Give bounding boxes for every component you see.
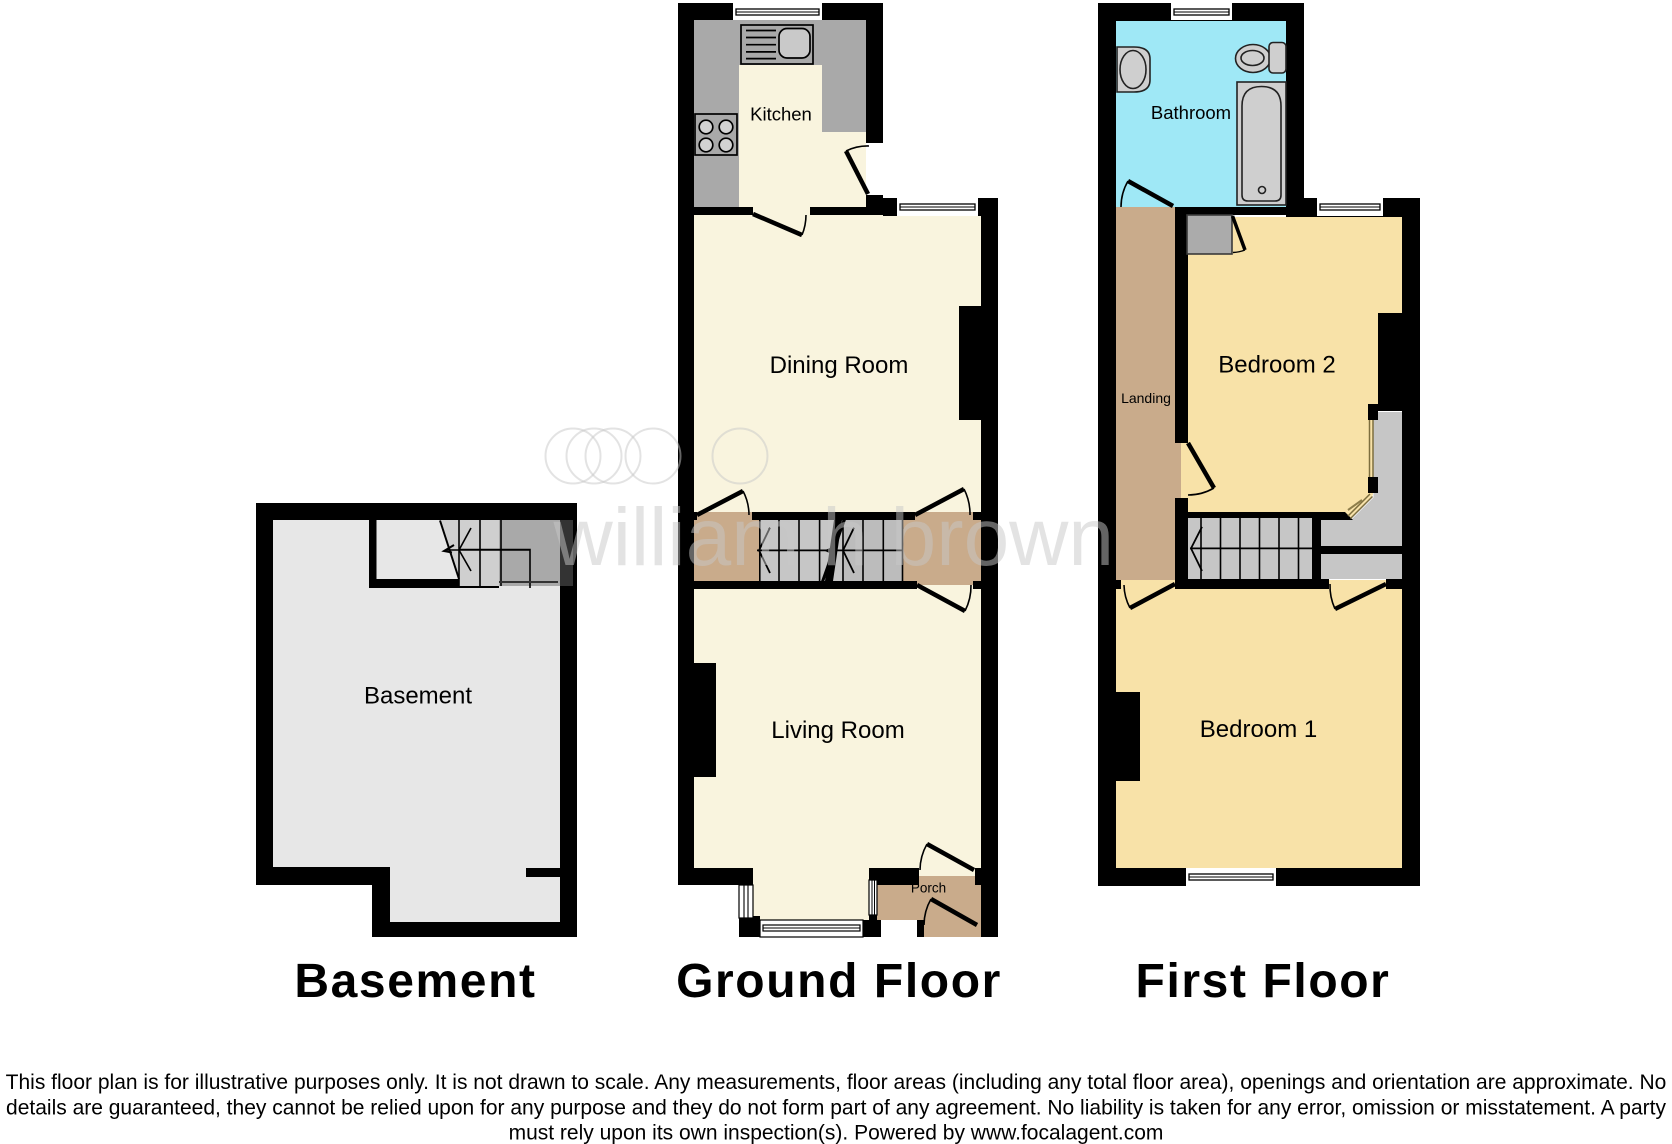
svg-text:william h brown: william h brown (553, 492, 1115, 583)
svg-text:Living Room: Living Room (771, 717, 904, 744)
svg-text:This floor plan is for illustr: This floor plan is for illustrative purp… (6, 1071, 1667, 1094)
svg-text:Bedroom 1: Bedroom 1 (1200, 716, 1317, 743)
svg-text:Kitchen: Kitchen (750, 104, 812, 125)
svg-text:Dining Room: Dining Room (770, 352, 909, 379)
svg-text:Bedroom 2: Bedroom 2 (1218, 352, 1335, 379)
svg-text:details are guaranteed, they c: details are guaranteed, they cannot be r… (6, 1097, 1666, 1120)
svg-text:Bathroom: Bathroom (1151, 102, 1231, 123)
svg-text:Landing: Landing (1121, 390, 1171, 406)
svg-text:Basement: Basement (364, 683, 472, 710)
svg-text:Porch: Porch (911, 881, 946, 896)
svg-text:must rely upon its own inspect: must rely upon its own inspection(s). Po… (509, 1122, 1164, 1144)
svg-text:Ground Floor: Ground Floor (676, 955, 1002, 1008)
svg-text:Basement: Basement (294, 955, 536, 1008)
svg-text:First Floor: First Floor (1136, 955, 1391, 1008)
